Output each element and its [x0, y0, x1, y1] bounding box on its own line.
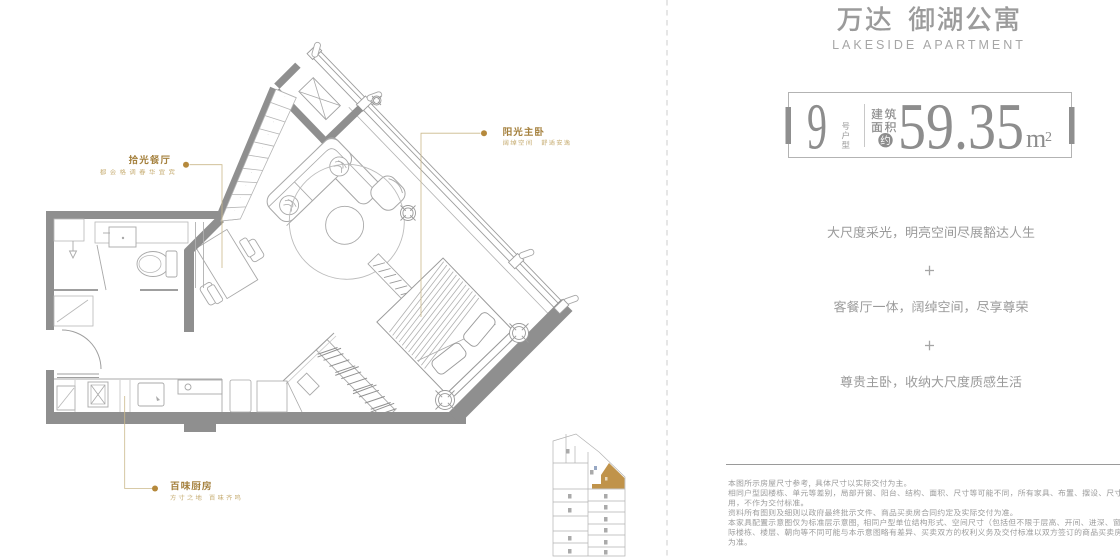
svg-text:m: m	[1026, 124, 1046, 153]
svg-text:2: 2	[1045, 130, 1052, 145]
svg-text:LAKESIDE APARTMENT: LAKESIDE APARTMENT	[832, 38, 1026, 52]
svg-text:59.35: 59.35	[898, 91, 1024, 164]
svg-text:9: 9	[807, 91, 827, 164]
